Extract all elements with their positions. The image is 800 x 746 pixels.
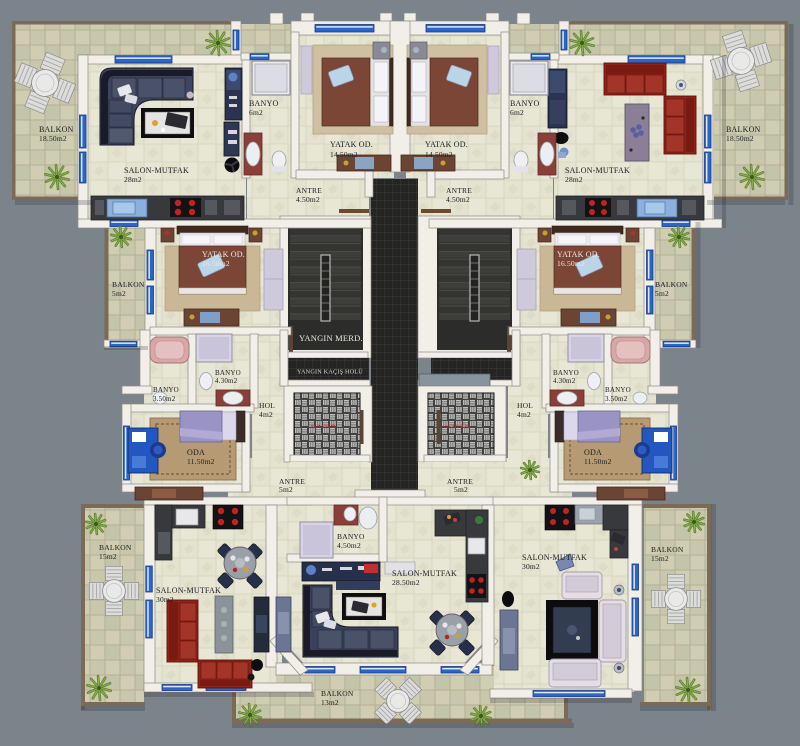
svg-text:11.50m2: 11.50m2 [187,457,215,466]
svg-text:4.30m2: 4.30m2 [215,377,238,385]
svg-text:15m2: 15m2 [99,552,117,561]
svg-text:ASANSÖR: ASANSÖR [444,423,470,430]
svg-text:BANYO: BANYO [510,99,539,108]
svg-text:16.50m2: 16.50m2 [202,259,230,268]
svg-text:28.50m2: 28.50m2 [392,578,420,587]
svg-text:15m2: 15m2 [651,554,669,563]
svg-text:BALKON: BALKON [651,545,684,554]
svg-text:14.50m2: 14.50m2 [330,150,358,159]
svg-text:14.50m2: 14.50m2 [425,150,453,159]
svg-text:4m2: 4m2 [517,410,531,419]
svg-text:ANTRE: ANTRE [296,186,322,195]
svg-text:SALON-MUTFAK: SALON-MUTFAK [124,166,189,175]
svg-text:HOL: HOL [517,401,533,410]
svg-text:6m2: 6m2 [510,108,524,117]
svg-text:ANTRE: ANTRE [446,186,472,195]
svg-text:ODA: ODA [187,448,205,457]
svg-text:18.50m2: 18.50m2 [39,134,67,143]
svg-text:YATAK OD.: YATAK OD. [202,250,245,259]
svg-text:28m2: 28m2 [124,175,142,184]
svg-text:SALON-MUTFAK: SALON-MUTFAK [156,586,221,595]
svg-text:SALON-MUTFAK: SALON-MUTFAK [565,166,630,175]
svg-text:BANYO: BANYO [249,99,278,108]
svg-text:5m2: 5m2 [279,485,293,494]
svg-text:18.50m2: 18.50m2 [726,134,754,143]
svg-text:13m2: 13m2 [321,698,339,707]
svg-text:4m2: 4m2 [259,410,273,419]
svg-text:BANYO: BANYO [605,386,631,394]
svg-text:BALKON: BALKON [99,543,132,552]
svg-text:BANYO: BANYO [337,532,365,541]
svg-text:BANYO: BANYO [553,369,579,377]
svg-text:BALKON: BALKON [112,280,145,289]
svg-text:YANGIN KAÇIŞ HOLÜ: YANGIN KAÇIŞ HOLÜ [297,369,363,376]
svg-text:4.50m2: 4.50m2 [296,195,320,204]
svg-text:BALKON: BALKON [39,125,74,134]
svg-text:YATAK OD.: YATAK OD. [330,140,373,149]
svg-text:YATAK OD.: YATAK OD. [425,140,468,149]
svg-text:11.50m2: 11.50m2 [584,457,612,466]
svg-text:3.50m2: 3.50m2 [605,395,628,403]
svg-text:6m2: 6m2 [249,108,263,117]
svg-text:4.50m2: 4.50m2 [337,541,361,550]
svg-text:5m2: 5m2 [112,289,126,298]
svg-text:YANGIN MERD.: YANGIN MERD. [299,333,363,343]
svg-text:5m2: 5m2 [655,289,669,298]
svg-text:BANYO: BANYO [215,369,241,377]
svg-text:5m2: 5m2 [454,485,468,494]
svg-text:BALKON: BALKON [321,689,354,698]
svg-text:ASANSÖR: ASANSÖR [310,423,336,430]
svg-text:16.50m2: 16.50m2 [557,259,585,268]
svg-text:HOL: HOL [259,401,275,410]
svg-text:YATAK OD.: YATAK OD. [557,250,600,259]
svg-text:ODA: ODA [584,448,602,457]
svg-text:30m2: 30m2 [156,595,174,604]
svg-text:BALKON: BALKON [726,125,761,134]
svg-text:SALON-MUTFAK: SALON-MUTFAK [522,553,587,562]
svg-text:3.50m2: 3.50m2 [153,395,176,403]
svg-text:4.50m2: 4.50m2 [446,195,470,204]
svg-text:SALON-MUTFAK: SALON-MUTFAK [392,569,457,578]
svg-text:28m2: 28m2 [565,175,583,184]
svg-text:4.30m2: 4.30m2 [553,377,576,385]
svg-text:BALKON: BALKON [655,280,688,289]
svg-text:30m2: 30m2 [522,562,540,571]
svg-text:BANYO: BANYO [153,386,179,394]
